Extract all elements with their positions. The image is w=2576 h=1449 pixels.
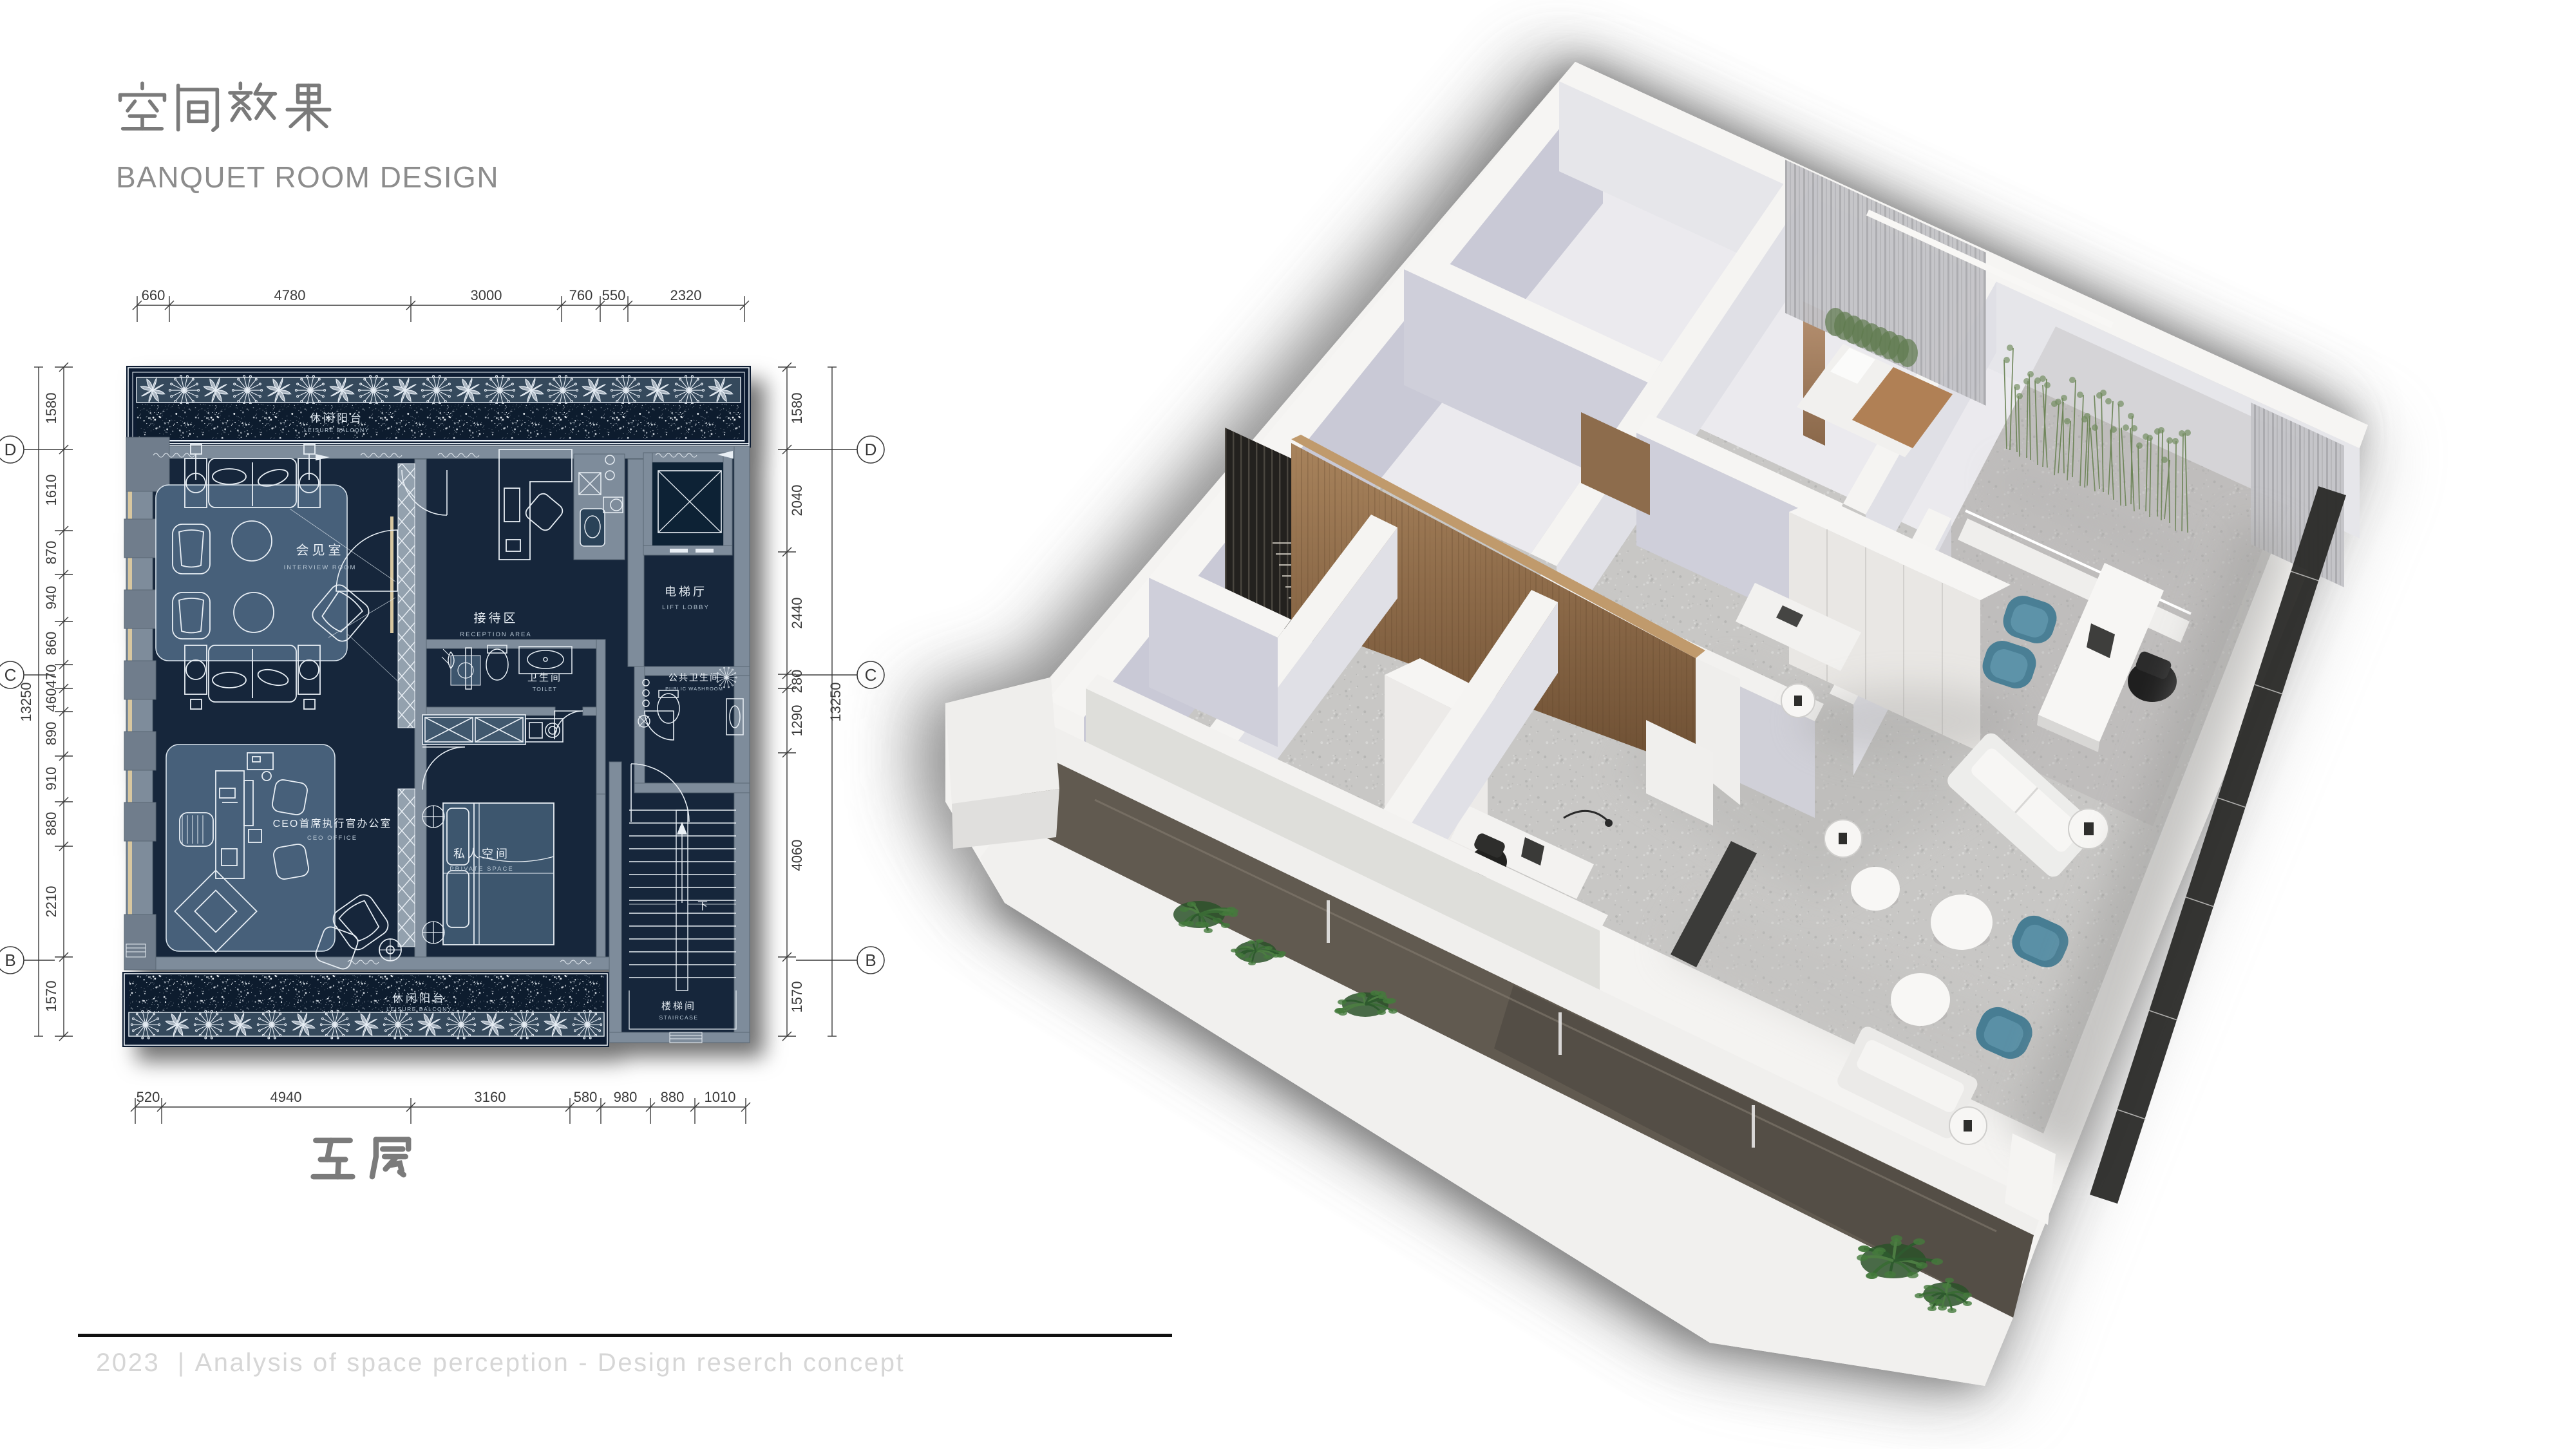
svg-text:2320: 2320 <box>670 287 702 303</box>
svg-text:940: 940 <box>43 586 59 610</box>
svg-text:B: B <box>5 951 15 970</box>
svg-text:LEISURE BALCONY: LEISURE BALCONY <box>386 1006 452 1012</box>
svg-text:910: 910 <box>43 767 59 791</box>
svg-text:860: 860 <box>43 632 59 656</box>
svg-text:520: 520 <box>137 1089 160 1105</box>
svg-text:PRIVATE SPACE: PRIVATE SPACE <box>450 866 513 873</box>
svg-text:B: B <box>865 951 876 970</box>
svg-text:660: 660 <box>142 287 166 303</box>
svg-text:980: 980 <box>614 1089 638 1105</box>
svg-text:C: C <box>5 665 17 685</box>
svg-text:会见室: 会见室 <box>296 543 345 558</box>
svg-text:880: 880 <box>661 1089 685 1105</box>
svg-text:电梯厅: 电梯厅 <box>665 585 707 598</box>
svg-text:2040: 2040 <box>789 485 805 516</box>
svg-text:470: 470 <box>43 665 59 688</box>
svg-text:3000: 3000 <box>471 287 502 303</box>
svg-text:LIFT LOBBY: LIFT LOBBY <box>662 604 710 611</box>
svg-text:880: 880 <box>43 812 59 836</box>
svg-text:休闲阳台: 休闲阳台 <box>310 412 364 424</box>
svg-text:D: D <box>865 440 877 459</box>
svg-text:CEO OFFICE: CEO OFFICE <box>307 835 357 842</box>
svg-text:550: 550 <box>602 287 626 303</box>
svg-text:760: 760 <box>569 287 593 303</box>
svg-text:CEO首席执行官办公室: CEO首席执行官办公室 <box>273 818 392 829</box>
svg-text:1290: 1290 <box>789 705 805 737</box>
svg-text:4780: 4780 <box>274 287 306 303</box>
svg-text:STAIRCASE: STAIRCASE <box>659 1014 698 1021</box>
svg-text:870: 870 <box>43 541 59 565</box>
svg-text:下: 下 <box>697 901 708 912</box>
svg-text:1580: 1580 <box>789 393 805 424</box>
svg-text:13250: 13250 <box>828 682 844 721</box>
svg-text:公共卫生间: 公共卫生间 <box>668 672 720 683</box>
svg-text:3160: 3160 <box>475 1089 506 1105</box>
svg-text:460: 460 <box>43 688 59 712</box>
svg-text:楼梯间: 楼梯间 <box>661 1001 696 1012</box>
svg-text:D: D <box>5 440 17 459</box>
svg-text:INTERVIEW ROOM: INTERVIEW ROOM <box>284 564 357 571</box>
svg-text:1610: 1610 <box>43 475 59 506</box>
svg-text:1010: 1010 <box>705 1089 736 1105</box>
svg-text:4060: 4060 <box>789 840 805 871</box>
svg-text:1580: 1580 <box>43 393 59 424</box>
svg-text:LEISURE BALCONY: LEISURE BALCONY <box>304 427 370 433</box>
svg-text:2210: 2210 <box>43 886 59 918</box>
svg-text:接待区: 接待区 <box>473 611 518 625</box>
svg-text:卫生间: 卫生间 <box>527 672 562 683</box>
svg-text:1570: 1570 <box>43 981 59 1012</box>
svg-text:13250: 13250 <box>18 682 34 721</box>
svg-text:1570: 1570 <box>789 981 805 1013</box>
svg-text:2440: 2440 <box>789 598 805 629</box>
svg-text:PUBLIC WASHROOM: PUBLIC WASHROOM <box>665 686 723 692</box>
svg-text:休闲阳台: 休闲阳台 <box>392 992 446 1005</box>
svg-text:C: C <box>865 665 877 685</box>
svg-text:580: 580 <box>574 1089 598 1105</box>
svg-text:280: 280 <box>789 670 805 694</box>
svg-text:私人空间: 私人空间 <box>453 848 510 860</box>
svg-text:TOILET: TOILET <box>533 686 558 692</box>
svg-text:RECEPTION AREA: RECEPTION AREA <box>460 631 531 638</box>
svg-text:890: 890 <box>43 722 59 746</box>
svg-text:4940: 4940 <box>270 1089 302 1105</box>
